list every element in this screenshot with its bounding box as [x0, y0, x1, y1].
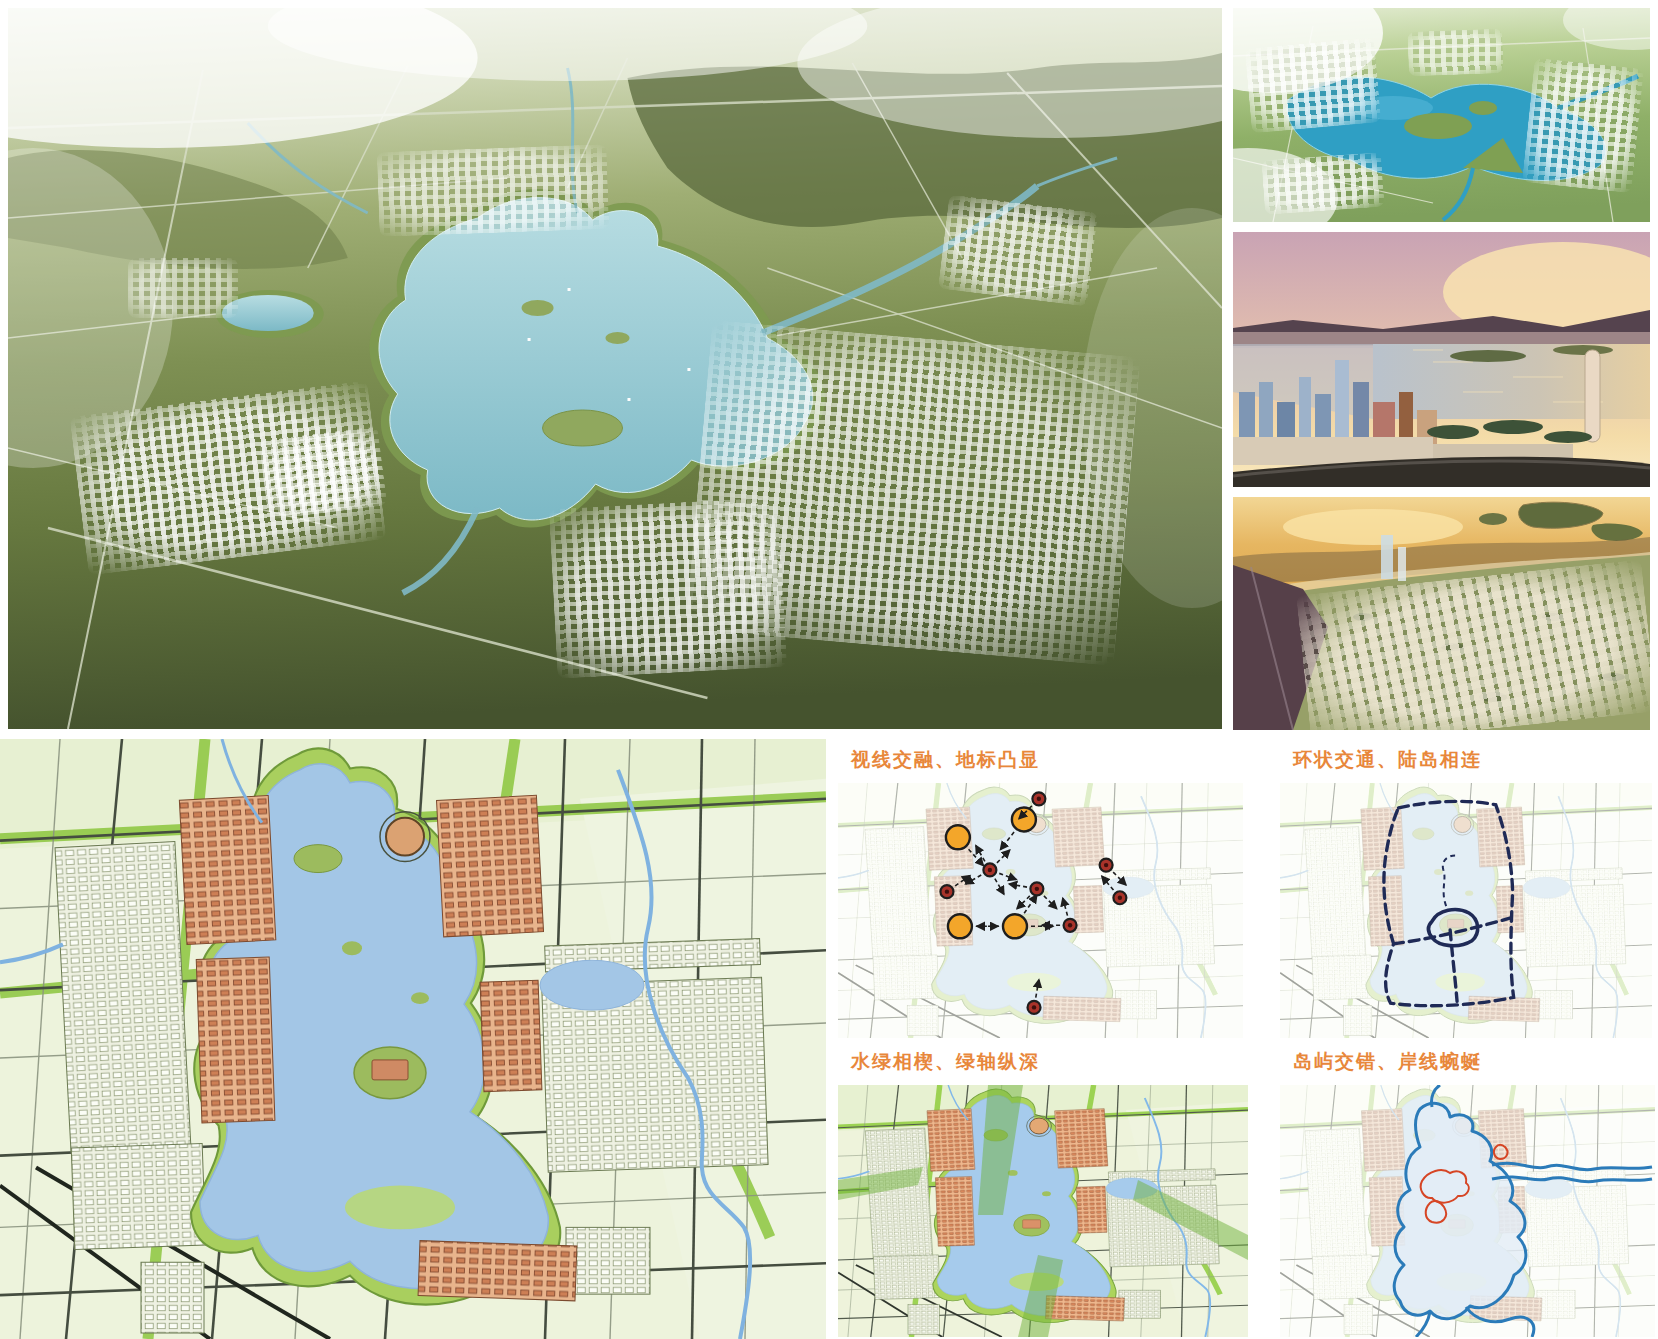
building-cluster [1245, 37, 1382, 133]
viewpoint-marker [1028, 980, 1041, 1014]
ring-road-route [1384, 801, 1514, 1005]
diagram-title-ring: 环状交通、陆岛相连 [1280, 747, 1652, 771]
viewpoint-marker [1102, 876, 1126, 904]
masterplan-map [0, 739, 826, 1339]
thumb-sunset-cbd-rendering [1233, 232, 1650, 487]
landmark-marker [946, 825, 983, 865]
sightline-markers-layer [838, 783, 1243, 1038]
viewpoint-marker [966, 846, 1017, 894]
building-cluster [938, 194, 1098, 307]
lake-shoreline [1394, 1103, 1526, 1318]
south-river [1466, 1307, 1534, 1337]
diagram-ring-traffic: 环状交通、陆岛相连 [1280, 747, 1652, 1038]
diagram-ring-map [1280, 783, 1652, 1038]
building-cluster [377, 144, 610, 237]
river-arm [1492, 1163, 1652, 1170]
diagram-islands-shoreline: 岛屿交错、岸线蜿蜒 [1280, 1049, 1655, 1337]
viewpoint-marker [1009, 882, 1056, 908]
ring-route-layer [1280, 783, 1652, 1038]
diagram-title-sightlines: 视线交融、地标凸显 [838, 747, 1243, 771]
thumb-aerial-lake-rendering [1233, 8, 1650, 222]
shoreline-layer [1280, 1085, 1655, 1337]
viewpoint-marker [940, 876, 969, 899]
river-arm [1492, 1177, 1652, 1182]
diagram-green-wedges: 水绿相楔、绿轴纵深 [838, 1049, 1248, 1337]
masterplan-art [0, 739, 826, 1339]
diagram-title-green: 水绿相楔、绿轴纵深 [838, 1049, 1248, 1073]
building-cluster [1522, 58, 1644, 194]
ring-vertical-link [1450, 930, 1457, 1001]
thumb-sunset-blocks-rendering [1233, 497, 1650, 730]
green-wedge-layer [838, 1085, 1248, 1337]
diagram-green-map [838, 1085, 1248, 1337]
presentation-board: 视线交融、地标凸显 环状交通、陆岛相连 [0, 0, 1658, 1339]
thumb2-art [1233, 232, 1650, 487]
diagram-title-islands: 岛屿交错、岸线蜿蜒 [1280, 1049, 1655, 1073]
landmark-marker [977, 895, 1053, 938]
hero-aerial-rendering [8, 8, 1222, 729]
diagram-islands-map [1280, 1085, 1655, 1337]
building-cluster [1407, 28, 1504, 76]
building-cluster [259, 426, 388, 520]
diagram-sightlines: 视线交融、地标凸显 [838, 747, 1243, 1038]
building-cluster [128, 258, 238, 318]
landmark-marker [1000, 807, 1035, 849]
diagram-sightlines-map [838, 783, 1243, 1038]
thumb2-landmark-tower [1585, 350, 1600, 442]
building-cluster [549, 497, 788, 679]
viewpoint-marker [1100, 859, 1126, 885]
building-cluster [1261, 152, 1385, 215]
island-link-road [1443, 855, 1455, 906]
island-outline [1494, 1145, 1508, 1159]
